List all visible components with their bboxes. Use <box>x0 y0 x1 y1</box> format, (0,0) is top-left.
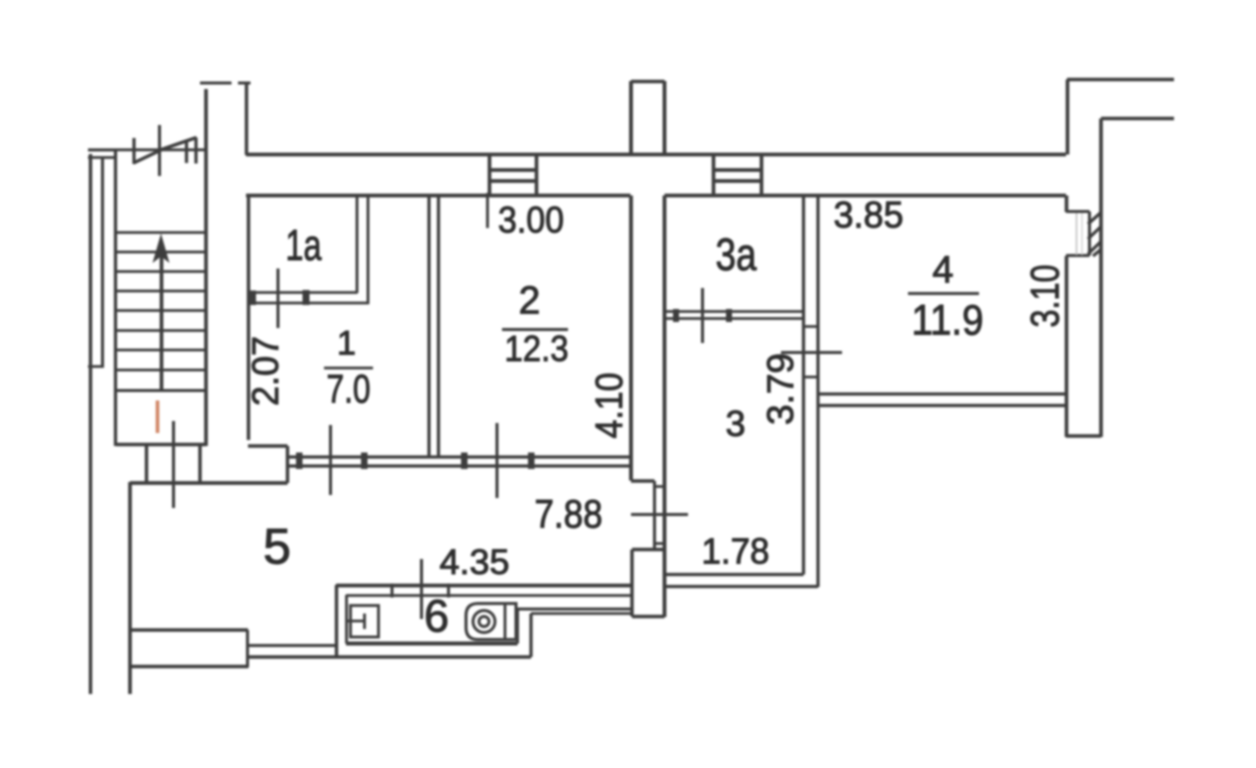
svg-text:7.0: 7.0 <box>327 368 371 412</box>
svg-text:4.10: 4.10 <box>589 373 631 439</box>
svg-text:3.10: 3.10 <box>1024 265 1068 328</box>
svg-text:2: 2 <box>519 280 541 323</box>
svg-text:1.78: 1.78 <box>702 531 770 572</box>
svg-text:1a: 1a <box>286 221 322 270</box>
svg-text:4.35: 4.35 <box>440 543 510 582</box>
svg-text:4: 4 <box>932 250 953 292</box>
svg-text:3.79: 3.79 <box>760 353 801 425</box>
svg-text:12.3: 12.3 <box>505 328 569 369</box>
svg-text:3a: 3a <box>716 229 758 280</box>
svg-text:3.85: 3.85 <box>834 195 904 236</box>
svg-text:1: 1 <box>337 325 356 363</box>
svg-text:3: 3 <box>725 403 745 444</box>
svg-text:11.9: 11.9 <box>912 297 984 345</box>
svg-text:5: 5 <box>263 519 291 575</box>
svg-text:3.00: 3.00 <box>498 200 564 241</box>
svg-text:2.07: 2.07 <box>245 336 286 406</box>
svg-text:7.88: 7.88 <box>535 493 603 537</box>
svg-text:6: 6 <box>424 591 449 642</box>
